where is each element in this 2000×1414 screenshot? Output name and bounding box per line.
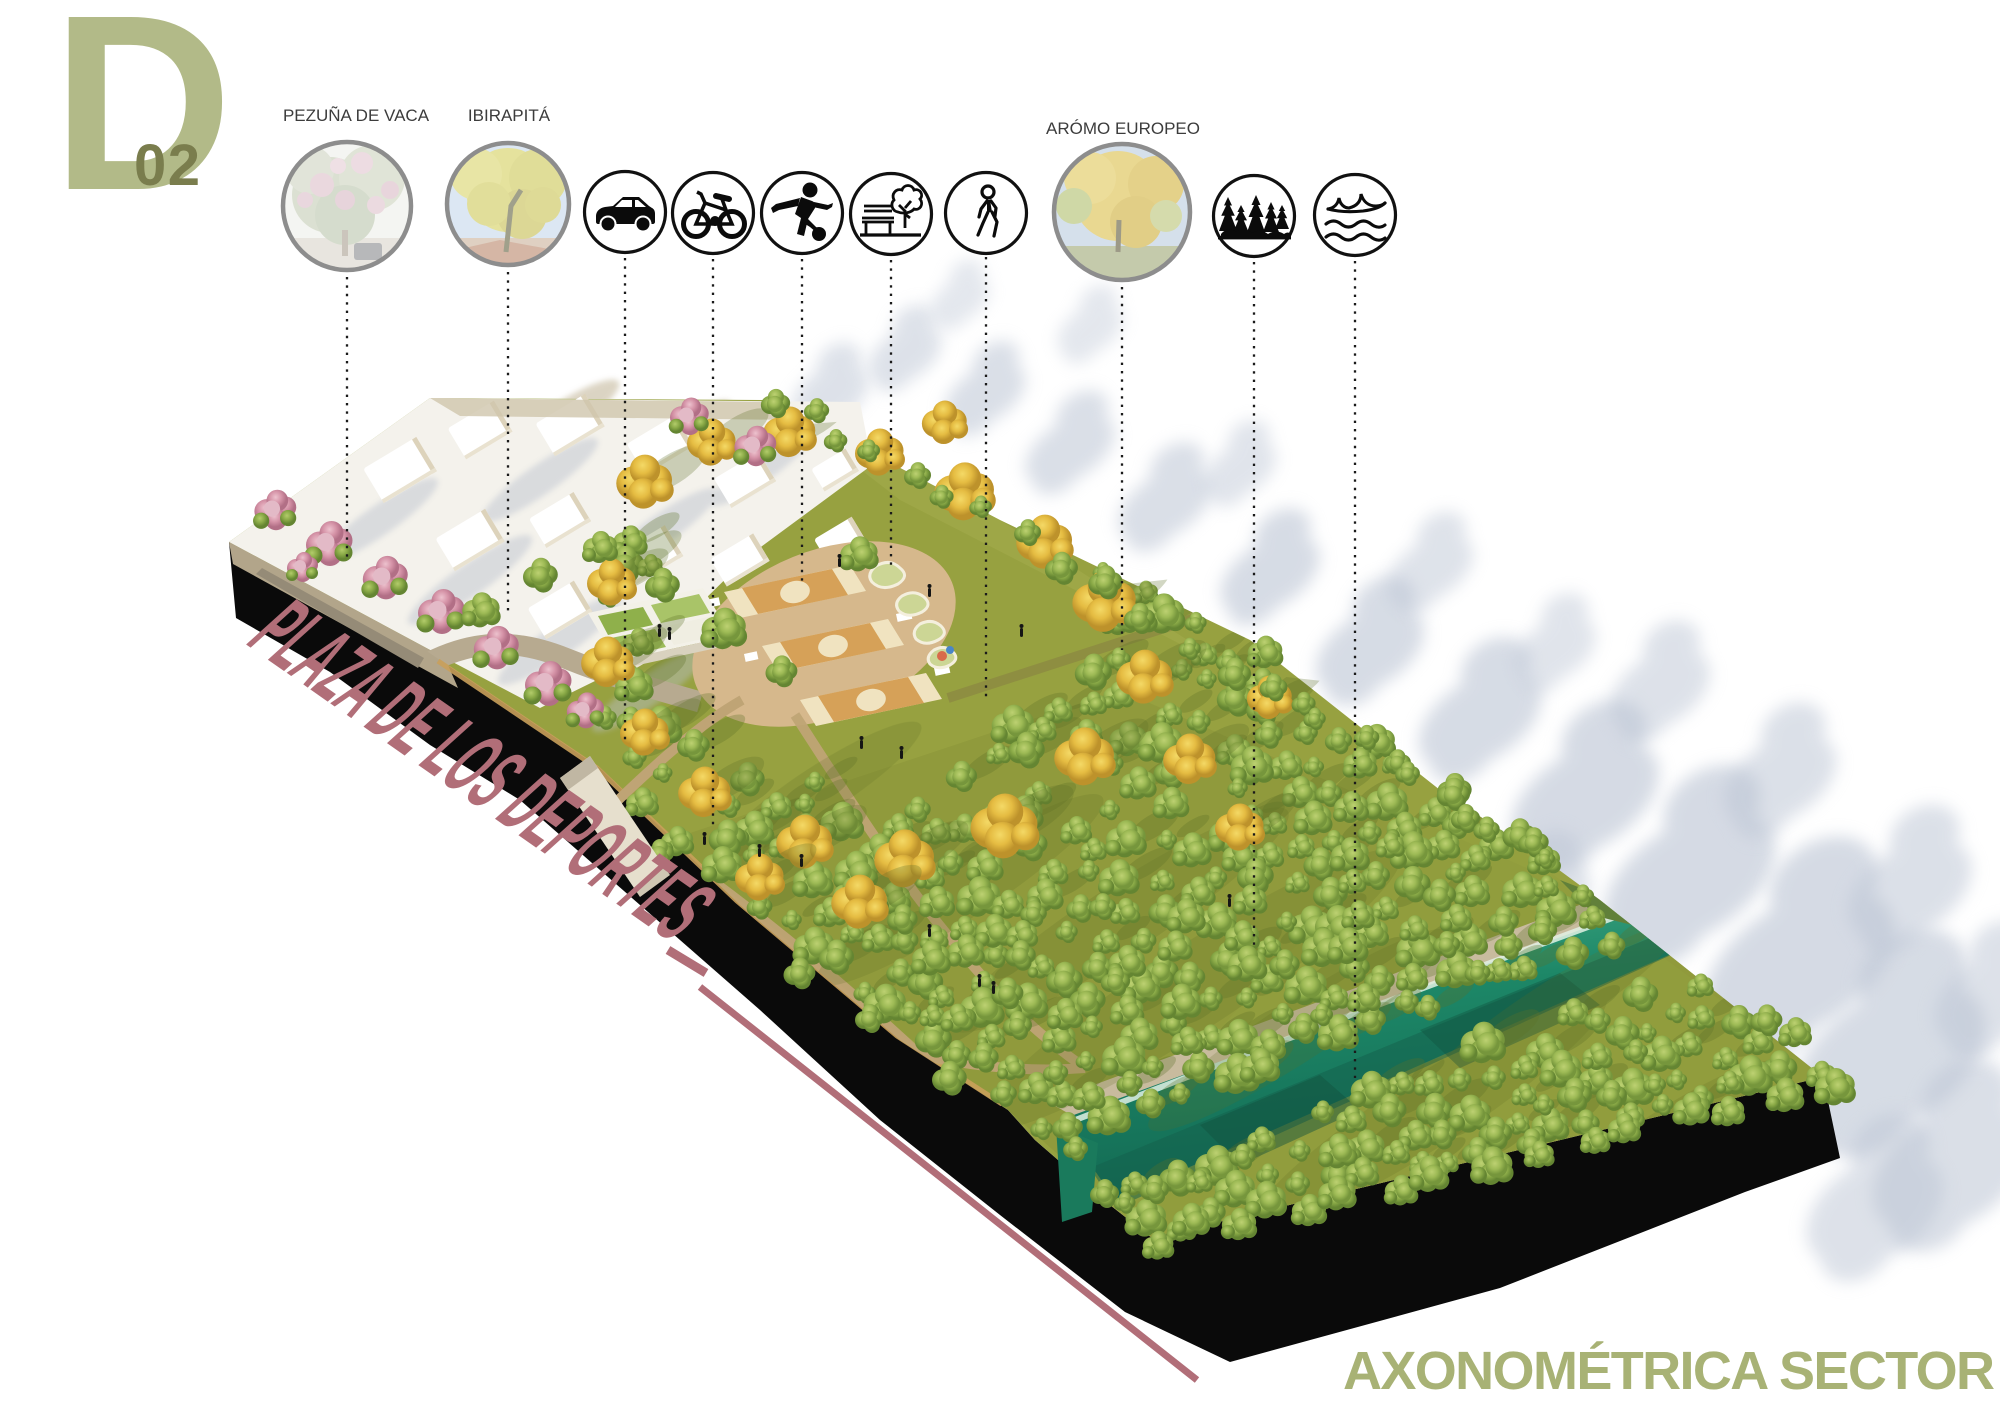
svg-text:AXONOMÉTRICA SECTOR: AXONOMÉTRICA SECTOR <box>1343 1341 1995 1401</box>
svg-text:ARÓMO EUROPEO: ARÓMO EUROPEO <box>1046 119 1200 138</box>
svg-text:D: D <box>52 0 233 242</box>
svg-text:PEZUÑA DE VACA: PEZUÑA DE VACA <box>283 106 430 125</box>
svg-text:IBIRAPITÁ: IBIRAPITÁ <box>468 106 551 125</box>
svg-text:02: 02 <box>134 133 202 198</box>
